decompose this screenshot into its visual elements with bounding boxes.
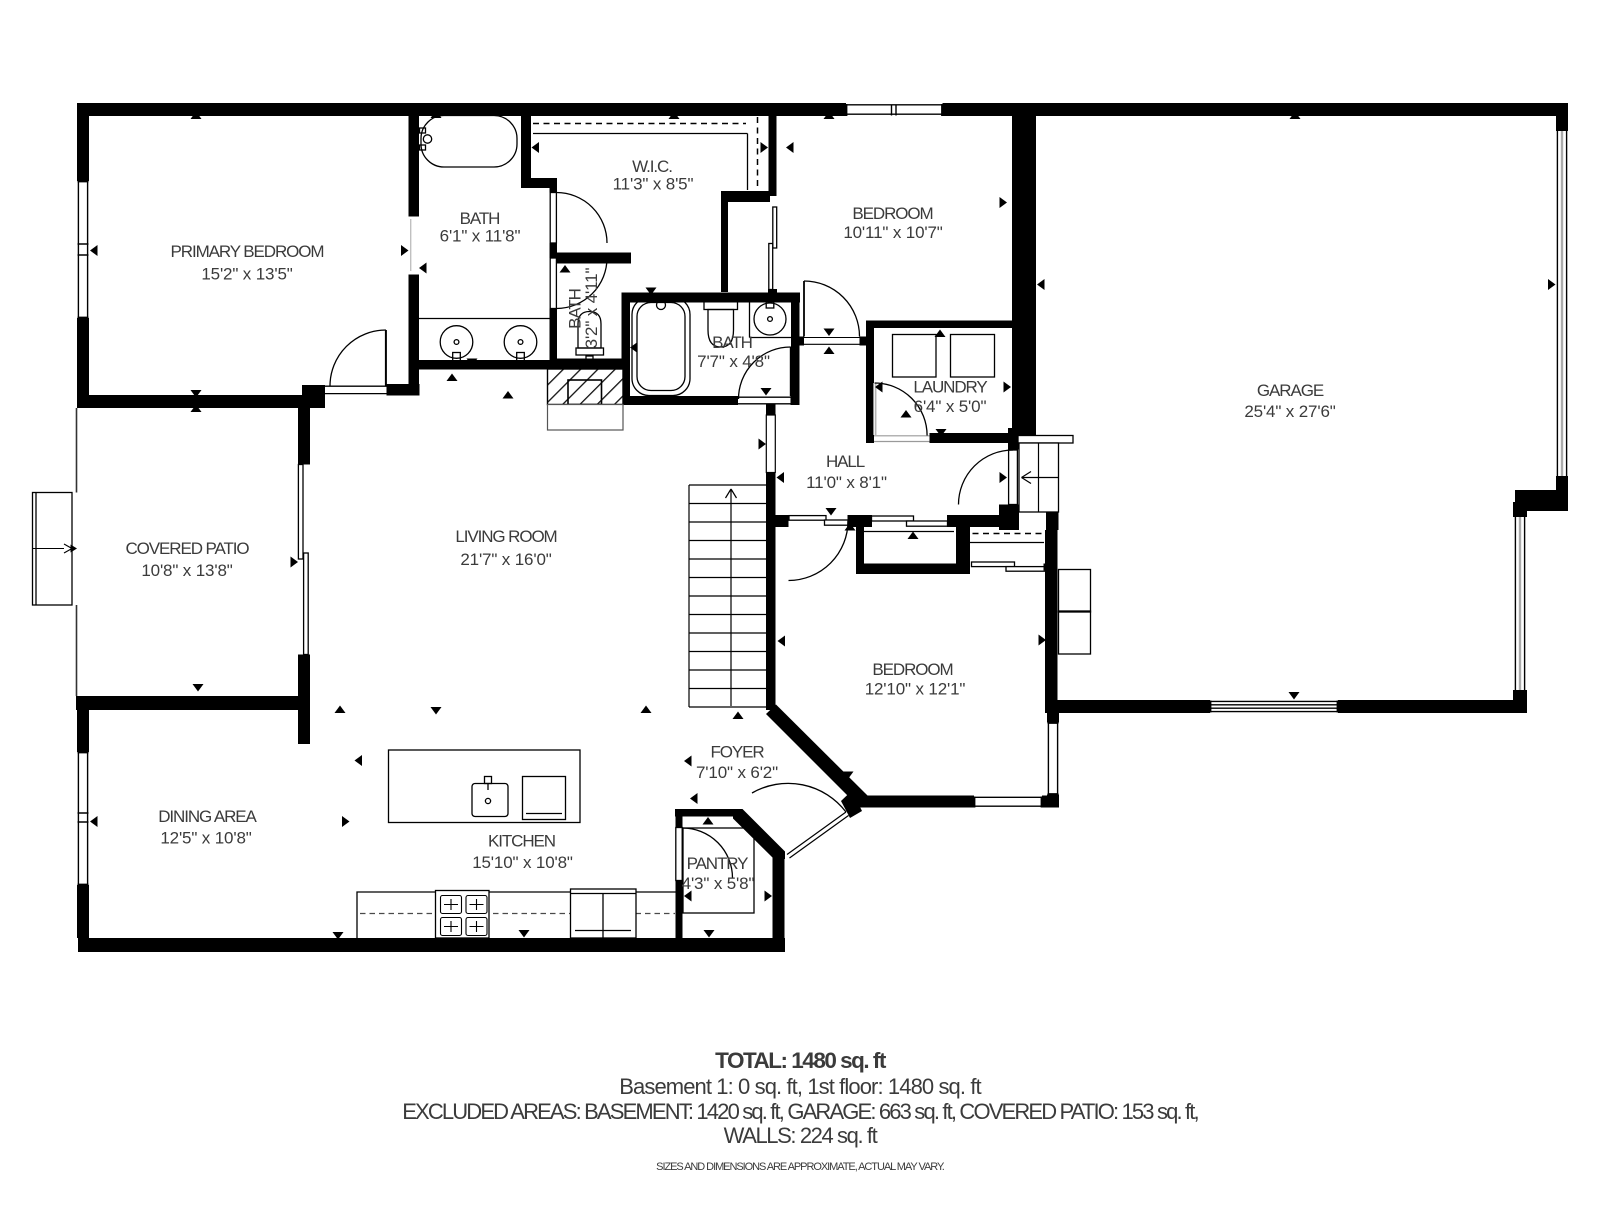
svg-text:11'3" x 8'5": 11'3" x 8'5" [613,175,694,194]
svg-text:EXCLUDED AREAS: BASEMENT: 1420: EXCLUDED AREAS: BASEMENT: 1420 sq. ft, G… [402,1099,1198,1124]
svg-text:10'8" x 13'8": 10'8" x 13'8" [141,561,232,580]
svg-text:SIZES AND DIMENSIONS ARE APPRO: SIZES AND DIMENSIONS ARE APPROXIMATE, AC… [656,1161,945,1173]
svg-text:PANTRY: PANTRY [687,854,749,873]
svg-text:6'1" x 11'8": 6'1" x 11'8" [440,227,521,246]
svg-text:11'0" x 8'1": 11'0" x 8'1" [806,473,887,492]
svg-text:7'7" x 4'8": 7'7" x 4'8" [697,352,770,371]
svg-text:GARAGE: GARAGE [1257,381,1324,400]
svg-text:HALL: HALL [826,452,865,471]
svg-text:KITCHEN: KITCHEN [488,832,555,851]
svg-text:3'2" x 4'11": 3'2" x 4'11" [582,268,601,349]
svg-text:12'10" x 12'1": 12'10" x 12'1" [865,680,966,699]
svg-text:15'10" x 10'8": 15'10" x 10'8" [472,853,573,872]
svg-text:WALLS: 224 sq. ft: WALLS: 224 sq. ft [724,1123,878,1148]
svg-text:BEDROOM: BEDROOM [872,660,952,679]
svg-text:W.I.C.: W.I.C. [632,157,672,176]
svg-text:12'5" x 10'8": 12'5" x 10'8" [160,829,251,848]
svg-text:FOYER: FOYER [710,743,764,762]
svg-text:PRIMARY BEDROOM: PRIMARY BEDROOM [171,242,324,261]
svg-text:COVERED PATIO: COVERED PATIO [126,539,250,558]
svg-text:6'4" x 5'0": 6'4" x 5'0" [914,397,987,416]
svg-text:21'7" x 16'0": 21'7" x 16'0" [460,550,551,569]
svg-text:4'3" x 5'8": 4'3" x 5'8" [682,874,755,893]
svg-text:15'2" x 13'5": 15'2" x 13'5" [201,265,292,284]
svg-text:BEDROOM: BEDROOM [852,204,932,223]
svg-text:BATH: BATH [712,333,752,352]
svg-text:LIVING ROOM: LIVING ROOM [455,527,556,546]
svg-text:7'10" x 6'2": 7'10" x 6'2" [696,763,778,782]
svg-text:LAUNDRY: LAUNDRY [913,378,987,397]
svg-text:10'11" x 10'7": 10'11" x 10'7" [843,223,942,242]
svg-text:BATH: BATH [460,209,500,228]
svg-text:DINING AREA: DINING AREA [158,807,257,826]
svg-text:TOTAL: 1480 sq. ft: TOTAL: 1480 sq. ft [715,1048,887,1073]
svg-text:Basement 1: 0 sq. ft, 1st floo: Basement 1: 0 sq. ft, 1st floor: 1480 sq… [619,1074,981,1099]
svg-text:25'4" x 27'6": 25'4" x 27'6" [1244,402,1335,421]
